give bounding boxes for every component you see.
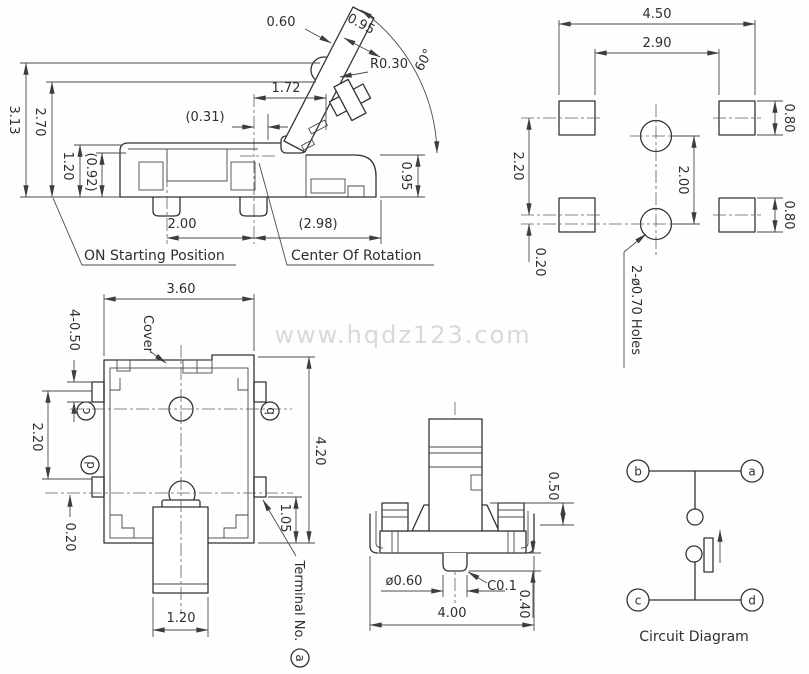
terminal-c-tab [92,382,104,402]
cover-leader [151,352,166,363]
dim-2-00-holes: 2.00 [675,166,690,195]
circuit-diagram-caption: Circuit Diagram [639,629,749,645]
circuit-wires [649,471,741,600]
front-stem [429,419,482,534]
dim-4-20: 4.20 [312,437,327,466]
dim-4-050: 4-0.50 [66,309,81,351]
dim-2-70: 2.70 [32,108,47,137]
body-right-edge [120,155,376,197]
dim-2-90: 2.90 [643,36,672,51]
stem-body [153,507,208,593]
cover-notch-1 [117,360,130,371]
dim-2-98: (2.98) [298,217,337,232]
holes-leader-arrow [624,234,646,252]
front-view: 0.50 ø0.60 C0.1 4.00 0.40 [370,402,574,631]
circuit-terminal-c: c [635,594,642,608]
ext-290 [595,49,719,95]
terminal-a-callout-letter: a [293,654,307,661]
engineering-drawing-page: www.hqdz123.com [0,0,809,674]
dim-0-20: 0.20 [532,248,547,277]
ext-050 [67,382,92,402]
front-left-wing-outer [370,514,378,553]
dim-angle-60: 60° [412,47,436,74]
dim-0-92: (0.92) [83,152,98,191]
terminal-d-tab [92,477,104,497]
circuit-terminal-b: b [634,465,642,479]
dim-2-20: 2.20 [510,152,525,181]
terminal-d-letter: d [83,461,97,469]
side-view: 60° 3.13 2.70 1.20 (0.92) 0.60 0.95 R0.3… [6,7,437,265]
right-cavity [311,179,345,193]
dim-0-60: 0.60 [267,15,296,30]
solder-foot-1 [153,197,180,216]
holes-label: 2-ø0.70 Holes [628,265,643,355]
dim-1-20: 1.20 [60,152,75,181]
pcb-land-pattern-view: 4.50 2.90 2.20 0.20 2.00 0.80 0.80 2-ø0.… [510,7,796,368]
dim-0-80-top: 0.80 [781,104,796,133]
dim-3-13: 3.13 [6,106,21,135]
dim-0-50-front: 0.50 [545,472,560,501]
contact-block-2 [231,162,255,190]
dim-0-31: (0.31) [185,110,224,125]
dim-4-50: 4.50 [643,7,672,22]
right-notch [348,186,364,197]
contact-block-1 [139,162,163,190]
front-base-plate [380,531,526,553]
terminal-no-label: Terminal No. [291,560,306,642]
switch-drawing-canvas: www.hqdz123.com [0,0,809,674]
center-of-rotation-label: Center Of Rotation [291,248,422,264]
leader-c01 [468,572,487,583]
ext-040 [469,553,541,571]
cover-label: Cover [140,315,155,354]
dim-dia-0-60: ø0.60 [386,574,423,589]
dim-0-20-top-view: 0.20 [62,523,77,552]
ext-360 [104,294,254,356]
dim-r0-30: R0.30 [370,57,408,72]
terminal-a-tab [254,477,266,497]
dim-0-80-bottom: 0.80 [781,201,796,230]
watermark-text: www.hqdz123.com [274,321,531,349]
body-left-top-edge [120,143,280,197]
dim-1-20-stem: 1.20 [167,611,196,626]
dim-2-20-top-view: 2.20 [29,423,44,452]
ext-450 [559,20,755,95]
terminal-c-letter: c [79,408,93,415]
switch-body-side [120,143,376,216]
solder-foot-2 [240,197,267,216]
leader-0-60 [305,29,331,43]
cover-notch-2 [183,360,212,373]
dim-0-40: 0.40 [516,590,531,619]
dim-c0-1: C0.1 [487,579,517,594]
circuit-contact-bottom [686,546,702,562]
front-center-boss [443,553,467,571]
dim-4-00: 4.00 [438,606,467,621]
dim-0-95-right: 0.95 [398,162,413,191]
dim-3-60: 3.60 [167,282,196,297]
circuit-terminal-d: d [748,594,756,608]
circuit-diagram: b a c d Circuit Diagram [627,460,763,645]
terminal-b-letter: b [263,407,277,415]
on-starting-position-label: ON Starting Position [84,248,225,264]
dim-1-72: 1.72 [272,81,301,96]
circuit-terminal-a: a [748,465,755,479]
body-recess [167,149,227,181]
circuit-contact-top [687,509,703,525]
terminal-b-tab [254,382,266,402]
circuit-slider-bar [704,538,713,572]
inner-step-top [110,378,248,390]
dim-2-00: 2.00 [168,217,197,232]
